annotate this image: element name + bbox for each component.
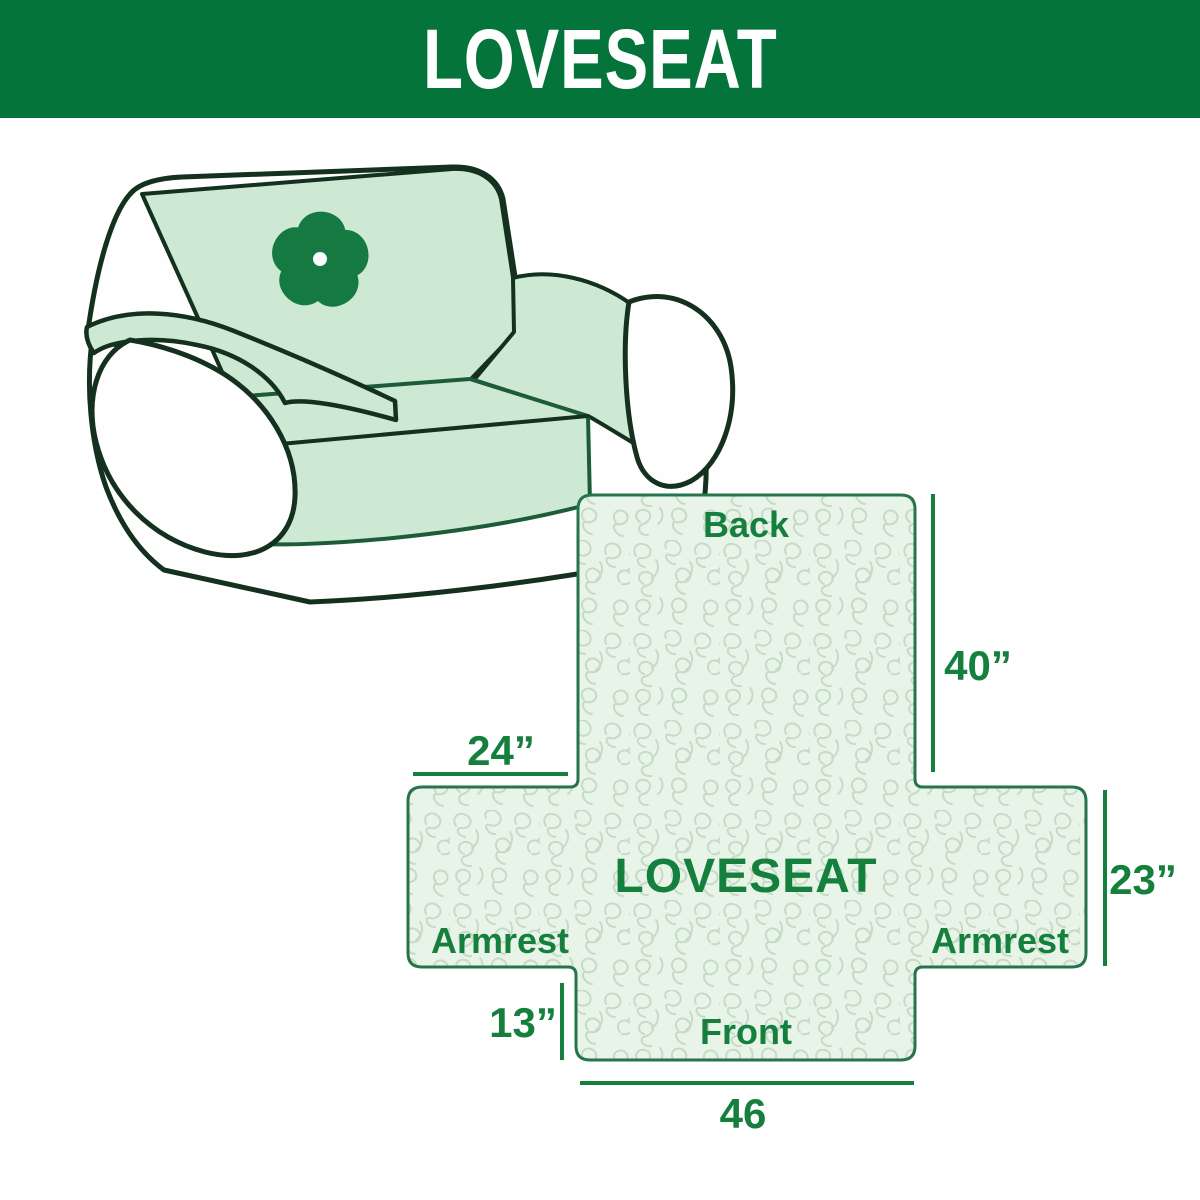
dim-armrest-height-value: 23” <box>1109 859 1177 901</box>
scene-graphic <box>0 0 1200 1200</box>
diagram-front-label: Front <box>700 1014 792 1050</box>
diagram-back-label: Back <box>703 507 789 543</box>
diagram-armrest-left-label: Armrest <box>431 923 569 959</box>
diagram-center-label: LOVESEAT <box>614 853 877 901</box>
dim-armrest-width-value: 24” <box>467 730 535 772</box>
diagram-armrest-right-label: Armrest <box>931 923 1069 959</box>
dim-front-width-value: 46 <box>720 1093 767 1135</box>
sofa-right-arm-roll <box>625 296 732 486</box>
pinwheel-center-dot <box>313 252 327 266</box>
dim-back-height-value: 40” <box>944 645 1012 687</box>
dim-front-depth-value: 13” <box>489 1002 557 1044</box>
